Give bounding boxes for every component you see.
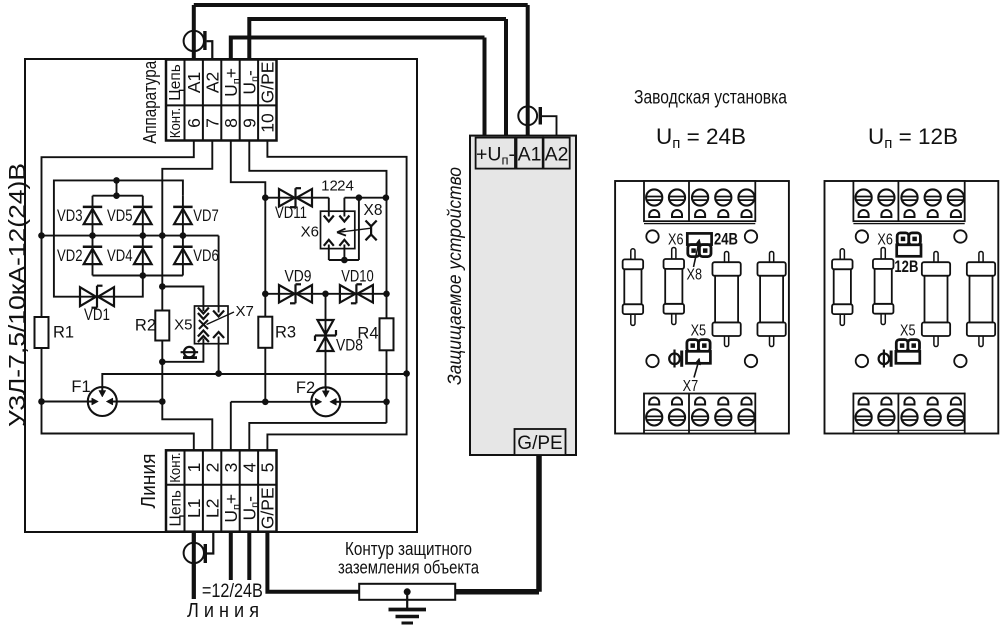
svg-text:10: 10: [258, 113, 278, 133]
svg-text:X7: X7: [683, 378, 699, 395]
svg-text:УЗЛ-7,5/10кА-12(24)В: УЗЛ-7,5/10кА-12(24)В: [4, 163, 30, 427]
svg-text:A2: A2: [545, 144, 569, 166]
svg-text:VD1: VD1: [84, 306, 110, 324]
svg-text:VD2: VD2: [57, 247, 83, 265]
svg-text:6: 6: [184, 118, 204, 128]
svg-text:2: 2: [203, 463, 223, 473]
svg-text:R1: R1: [53, 324, 74, 342]
svg-text:X5: X5: [900, 323, 916, 340]
svg-text:X6: X6: [877, 232, 893, 249]
svg-text:G/PE: G/PE: [517, 433, 562, 454]
svg-text:G/PE: G/PE: [258, 62, 278, 104]
svg-text:VD8: VD8: [336, 337, 363, 355]
svg-text:3: 3: [221, 463, 241, 473]
svg-text:X5: X5: [174, 317, 192, 334]
svg-text:24В: 24В: [714, 231, 738, 249]
svg-text:G/PE: G/PE: [258, 487, 278, 529]
svg-text:Защищаемое устройство: Защищаемое устройство: [445, 167, 466, 385]
svg-text:4: 4: [240, 462, 260, 472]
svg-text:X6: X6: [301, 224, 319, 241]
svg-text:9: 9: [240, 118, 260, 128]
svg-text:A1: A1: [518, 144, 542, 166]
svg-text:5: 5: [258, 463, 278, 473]
svg-text:L1: L1: [184, 499, 204, 518]
svg-text:X5: X5: [691, 323, 707, 340]
svg-text:VD4: VD4: [107, 247, 133, 265]
svg-text:X7: X7: [236, 303, 254, 320]
svg-text:VD7: VD7: [193, 207, 219, 225]
svg-text:VD3: VD3: [57, 207, 83, 225]
svg-text:12: 12: [321, 178, 338, 195]
svg-text:R2: R2: [135, 317, 156, 335]
svg-text:1: 1: [184, 463, 204, 473]
svg-text:X8: X8: [687, 267, 703, 284]
svg-text:Uп = 24В: Uп = 24В: [656, 124, 746, 152]
svg-text:F1: F1: [71, 378, 90, 396]
svg-text:VD6: VD6: [193, 247, 219, 265]
svg-text:Конт.: Конт.: [168, 452, 184, 483]
svg-text:VD9: VD9: [285, 268, 312, 286]
svg-text:Аппаратура: Аппаратура: [139, 60, 160, 144]
svg-text:24: 24: [337, 178, 354, 195]
svg-text:R3: R3: [275, 324, 296, 342]
svg-text:VD11: VD11: [275, 204, 307, 222]
svg-text:Конт.: Конт.: [168, 108, 184, 139]
svg-text:F2: F2: [296, 379, 315, 397]
svg-text:Л и н и я: Л и н и я: [187, 600, 259, 622]
svg-text:=12/24В: =12/24В: [202, 580, 263, 602]
svg-text:заземления объекта: заземления объекта: [338, 557, 480, 578]
svg-text:VD10: VD10: [341, 268, 374, 286]
svg-text:X8: X8: [364, 202, 383, 219]
svg-text:VD5: VD5: [107, 207, 133, 225]
svg-text:A1: A1: [184, 72, 204, 93]
svg-text:Цепь: Цепь: [167, 490, 184, 527]
svg-text:7: 7: [203, 118, 223, 128]
svg-text:Заводская установка: Заводская установка: [634, 88, 787, 109]
svg-text:A2: A2: [203, 72, 223, 93]
svg-text:12В: 12В: [894, 258, 918, 276]
svg-text:8: 8: [221, 118, 241, 128]
svg-text:L2: L2: [203, 499, 223, 518]
svg-text:Uп = 12В: Uп = 12В: [868, 124, 958, 152]
svg-text:Цепь: Цепь: [167, 64, 184, 101]
svg-text:+Uп-: +Uп-: [476, 144, 515, 168]
svg-text:Линия: Линия: [138, 454, 160, 509]
svg-text:X6: X6: [668, 232, 684, 249]
